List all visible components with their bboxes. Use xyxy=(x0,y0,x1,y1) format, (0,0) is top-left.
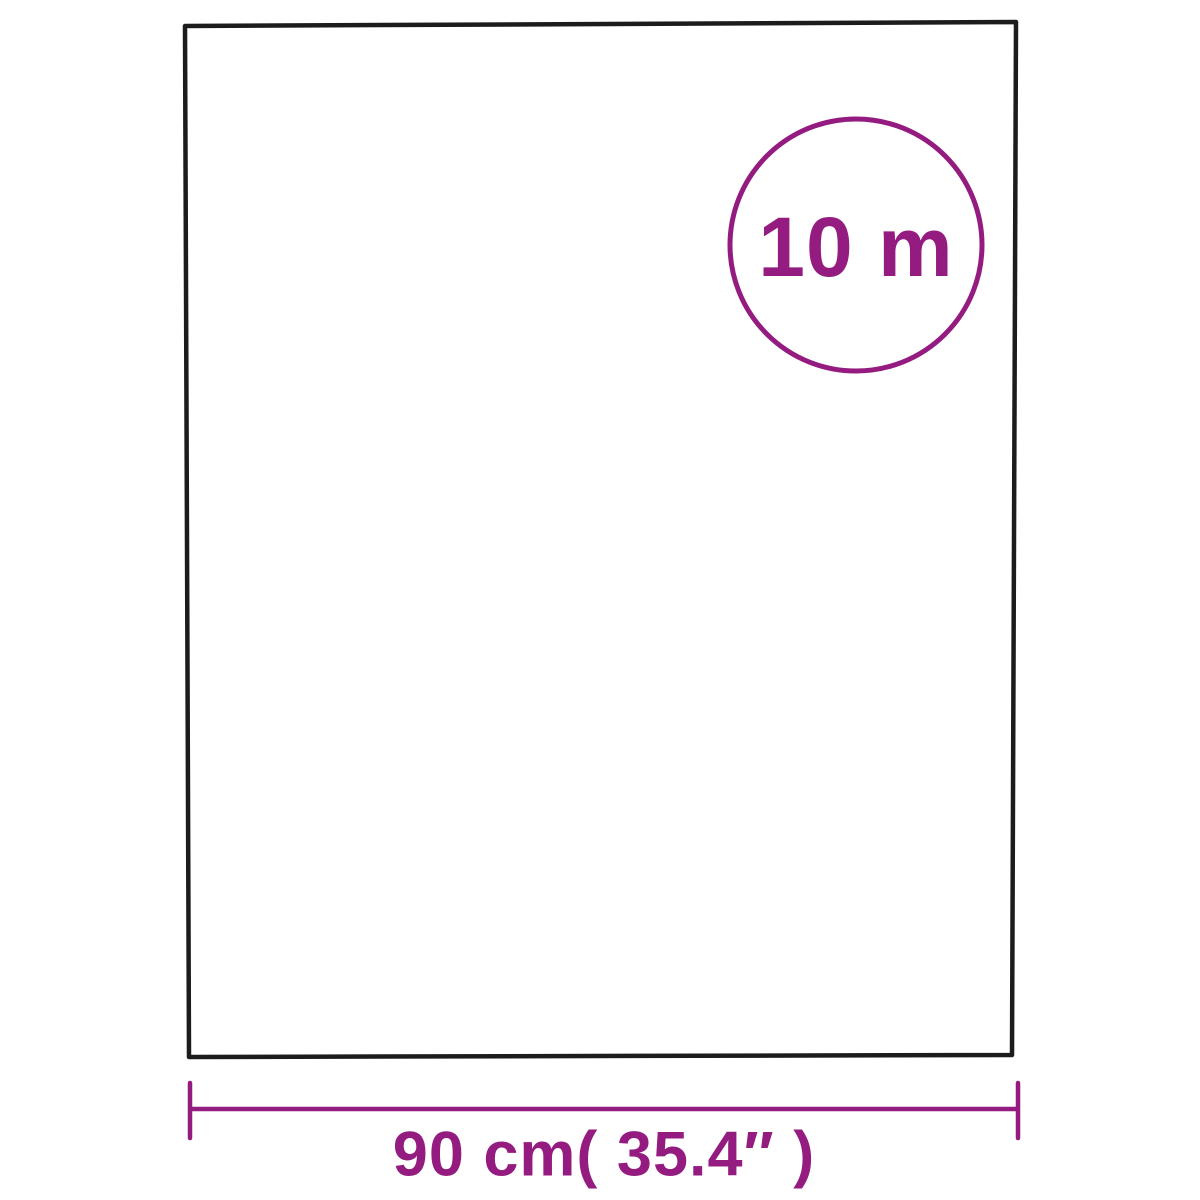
diagram-shapes xyxy=(0,0,1200,1200)
roll-length-badge-label: 10 m xyxy=(758,205,953,289)
width-dimension-label: 90 cm( 35.4″ ) xyxy=(393,1124,815,1187)
product-dimension-diagram: 10 m 90 cm( 35.4″ ) xyxy=(0,0,1200,1200)
